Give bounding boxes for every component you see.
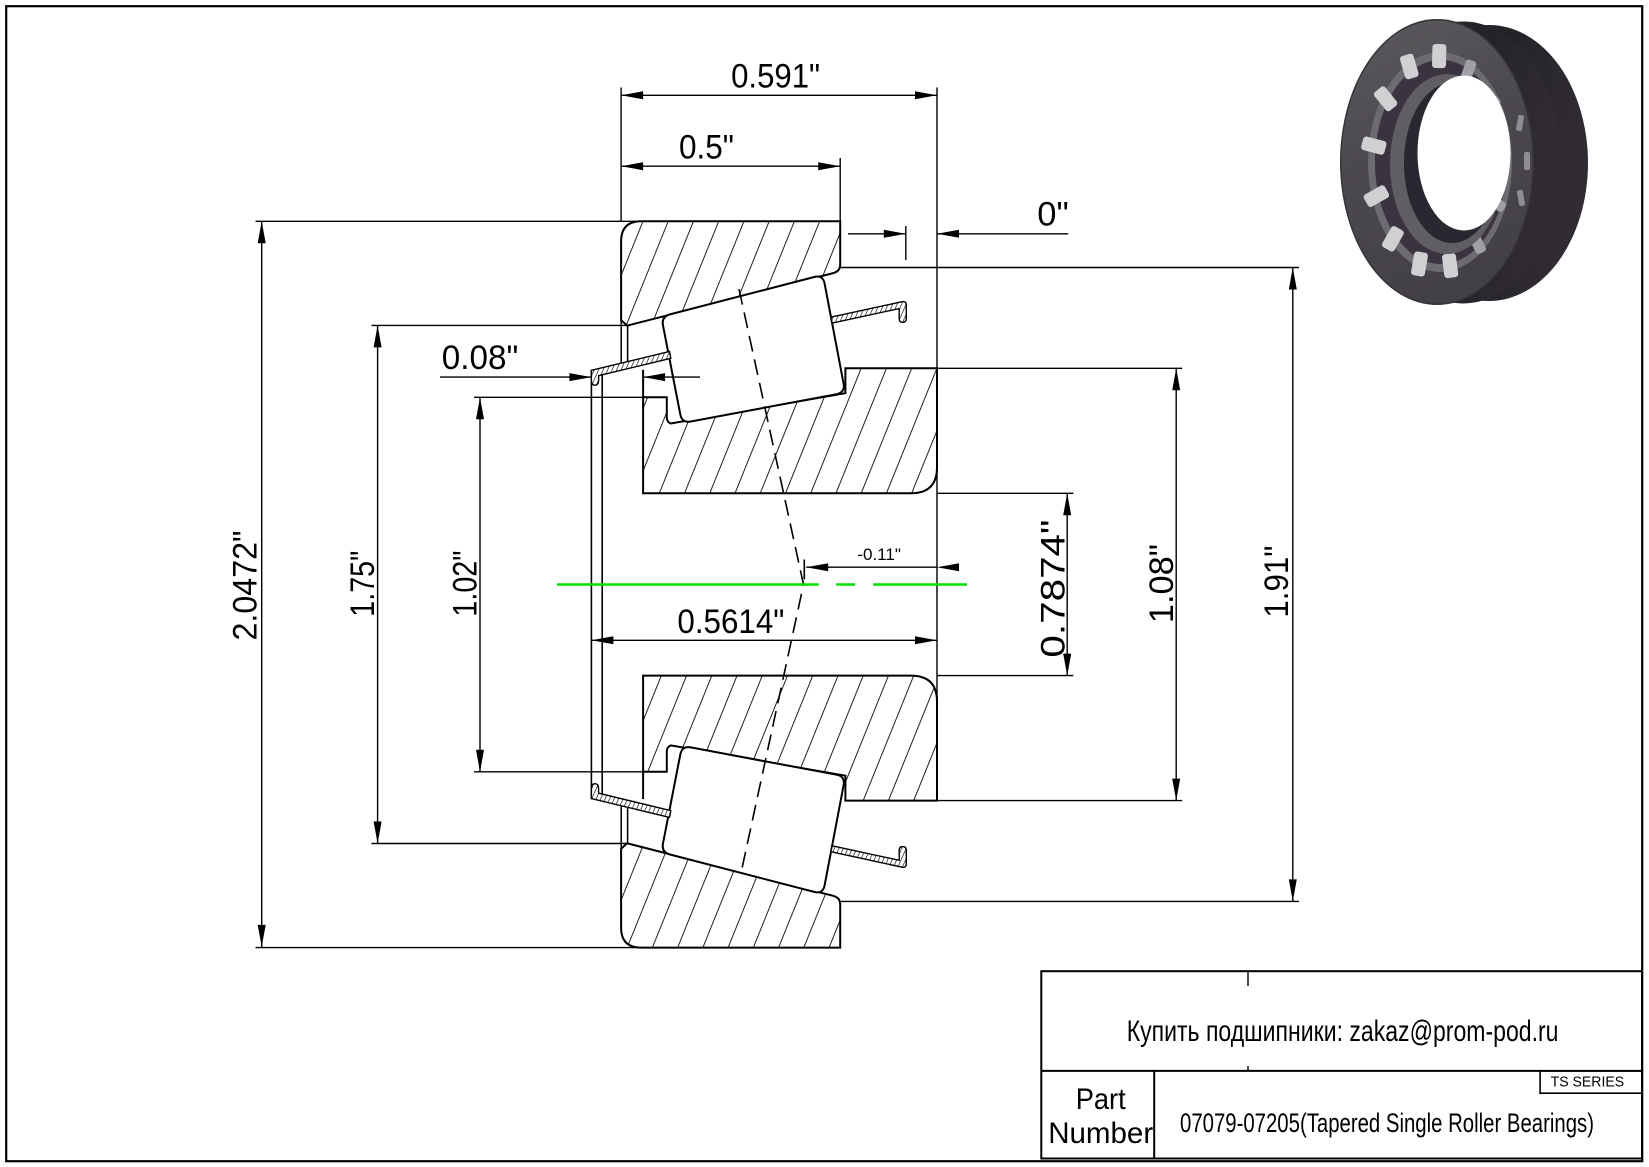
svg-text:TS SERIES: TS SERIES [1551, 1075, 1625, 1091]
svg-text:0.591": 0.591" [731, 57, 820, 95]
svg-text:0.5": 0.5" [679, 128, 734, 166]
svg-text:Number: Number [1048, 1117, 1153, 1150]
svg-text:1.91": 1.91" [1258, 546, 1296, 618]
svg-text:-0.11": -0.11" [857, 545, 901, 564]
svg-text:2.0472": 2.0472" [226, 531, 264, 641]
svg-text:Купить подшипники: zakaz@prom-: Купить подшипники: zakaz@prom-pod.ru [1127, 1015, 1559, 1048]
svg-text:1.75": 1.75" [344, 551, 382, 617]
svg-text:07079-07205(Tapered Single Rol: 07079-07205(Tapered Single Roller Bearin… [1180, 1108, 1594, 1138]
svg-text:0.08": 0.08" [442, 339, 519, 377]
svg-text:0": 0" [1037, 196, 1068, 234]
svg-text:Part: Part [1076, 1083, 1126, 1116]
svg-text:0.5614": 0.5614" [677, 603, 784, 641]
svg-text:1.08": 1.08" [1143, 544, 1181, 623]
svg-text:0.7874": 0.7874" [1035, 520, 1073, 658]
svg-text:1.02": 1.02" [447, 551, 485, 617]
